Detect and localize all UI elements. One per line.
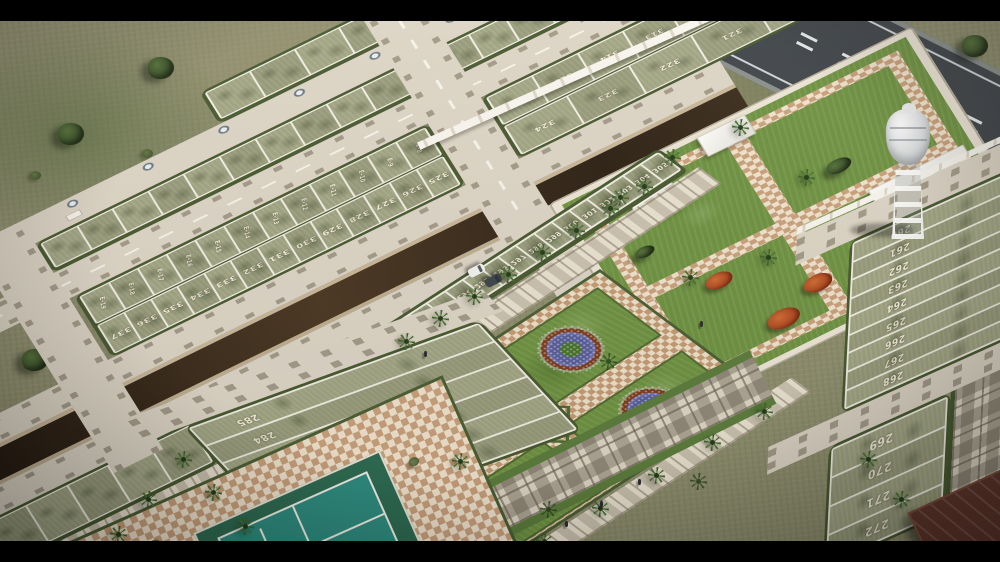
tree [58,123,84,145]
palm-tree [500,266,517,283]
water-tank-tower [884,105,934,255]
palm-tree [732,119,749,136]
palm-tree [452,453,469,470]
pedestrian [424,351,427,357]
palm-tree [860,451,877,468]
garden-tree [824,154,855,177]
tower-lattice-frame [892,157,924,239]
palm-tree [704,434,721,451]
aerial-scene: E-19E-18E-17E-16E-15E-14E-13E-12E-11E-10… [0,21,1000,541]
tree [962,35,988,57]
water-tank [886,109,930,165]
pedestrian [565,521,568,527]
palm-tree [205,484,222,501]
palm-tree [612,189,629,206]
palm-tree [398,333,415,350]
pedestrian [638,479,641,485]
palm-tree [664,149,681,166]
tank-band [890,127,926,129]
garden-tree [633,243,657,261]
palm-tree [237,518,254,535]
palm-tree [568,222,585,239]
tank-band [889,139,927,141]
palm-tree [175,451,192,468]
bush [30,171,41,180]
palm-tree [760,249,777,266]
aerial-render-frame: E-19E-18E-17E-16E-15E-14E-13E-12E-11E-10… [0,0,1000,562]
palm-tree-shadow [600,353,617,370]
pedestrian [700,321,703,327]
palm-tree [466,288,483,305]
tree [148,57,174,79]
palm-tree [682,269,699,286]
palm-tree [432,310,449,327]
pedestrian [600,501,603,507]
palm-tree [648,467,665,484]
palm-tree [636,178,653,195]
palm-tree [893,491,910,508]
letterbox-bottom [0,541,1000,562]
palm-tree-shadow [690,473,707,490]
palm-tree [534,244,551,261]
bush [407,455,421,468]
palm-tree [110,526,127,541]
palm-tree [798,169,815,186]
letterbox-top [0,0,1000,21]
tank-cap [902,103,916,113]
palm-tree [140,491,157,508]
palm-tree [756,403,773,420]
palm-tree-shadow [540,501,557,518]
